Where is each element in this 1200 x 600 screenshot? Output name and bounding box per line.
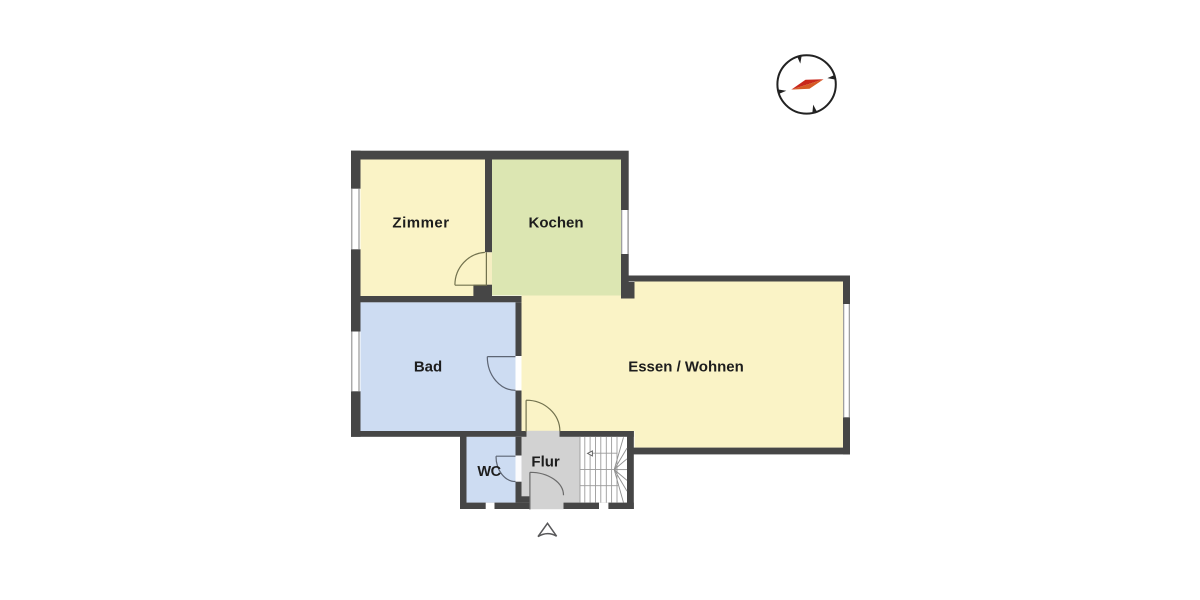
- svg-text:Zimmer: Zimmer: [392, 214, 449, 231]
- svg-text:WC: WC: [477, 464, 501, 480]
- svg-text:Flur: Flur: [531, 454, 559, 471]
- svg-text:Essen / Wohnen: Essen / Wohnen: [628, 359, 744, 376]
- svg-text:Kochen: Kochen: [528, 214, 583, 231]
- svg-text:Bad: Bad: [414, 359, 442, 376]
